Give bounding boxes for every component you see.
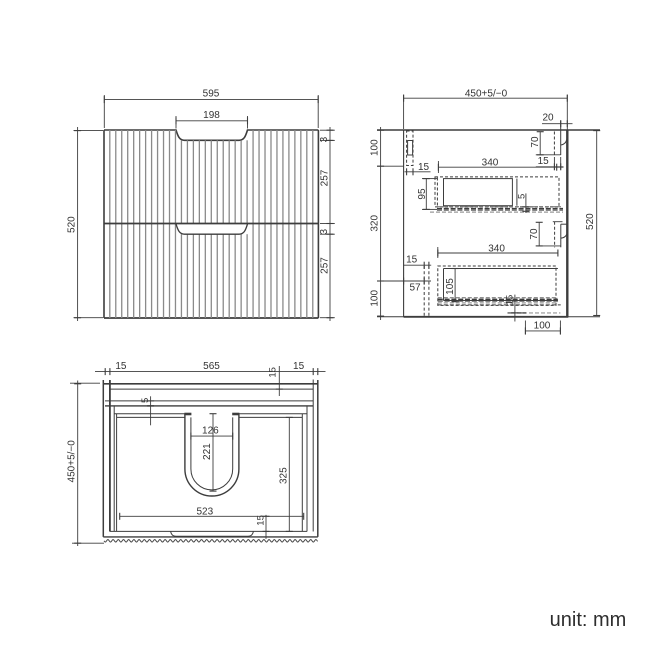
svg-text:15: 15 xyxy=(504,295,515,306)
svg-text:325: 325 xyxy=(278,467,289,484)
svg-text:5: 5 xyxy=(516,194,527,199)
svg-text:15: 15 xyxy=(418,162,430,173)
svg-text:105: 105 xyxy=(445,278,456,295)
svg-text:340: 340 xyxy=(482,157,499,168)
svg-text:100: 100 xyxy=(370,139,381,156)
svg-text:15: 15 xyxy=(255,515,266,526)
svg-text:100: 100 xyxy=(534,320,551,331)
svg-text:450+5/−0: 450+5/−0 xyxy=(465,88,508,99)
svg-text:15: 15 xyxy=(406,254,418,265)
svg-text:70: 70 xyxy=(529,228,540,240)
svg-text:70: 70 xyxy=(530,136,541,148)
svg-text:565: 565 xyxy=(203,361,220,372)
svg-text:198: 198 xyxy=(203,110,220,121)
svg-text:257: 257 xyxy=(320,169,331,186)
svg-text:595: 595 xyxy=(203,89,220,100)
svg-text:20: 20 xyxy=(542,113,554,124)
svg-text:57: 57 xyxy=(409,282,421,293)
svg-text:450+5/−0: 450+5/−0 xyxy=(67,440,78,483)
svg-text:unit: mm: unit: mm xyxy=(550,609,627,631)
svg-text:5: 5 xyxy=(140,398,151,403)
svg-text:221: 221 xyxy=(202,443,213,460)
svg-text:15: 15 xyxy=(538,156,550,167)
svg-text:520: 520 xyxy=(585,213,596,230)
svg-text:3: 3 xyxy=(319,228,330,234)
svg-text:100: 100 xyxy=(370,290,381,307)
svg-text:15: 15 xyxy=(268,367,279,378)
svg-text:126: 126 xyxy=(202,425,219,436)
svg-text:523: 523 xyxy=(196,507,213,518)
svg-text:3: 3 xyxy=(319,136,330,142)
svg-text:15: 15 xyxy=(115,361,127,372)
svg-text:340: 340 xyxy=(488,243,505,254)
svg-text:320: 320 xyxy=(370,215,381,232)
svg-text:520: 520 xyxy=(66,216,77,233)
svg-text:257: 257 xyxy=(320,257,331,274)
svg-text:15: 15 xyxy=(293,361,305,372)
svg-text:95: 95 xyxy=(417,188,428,200)
